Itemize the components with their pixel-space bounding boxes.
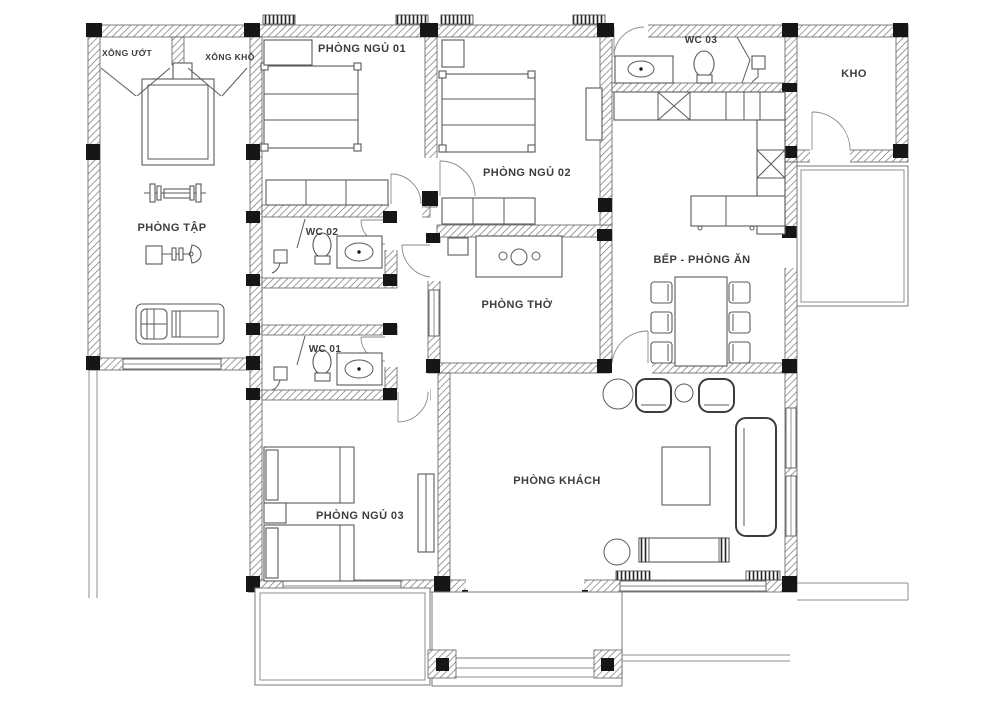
room-label-wc3: WC 03: [685, 35, 718, 46]
wardrobe-icon: [442, 198, 535, 224]
living-set-icon: [603, 379, 776, 565]
bed-icon: [261, 40, 388, 205]
sink-icon: [615, 56, 673, 83]
sink-icon: [337, 353, 382, 385]
window: [786, 476, 796, 536]
treadmill-icon: [136, 304, 224, 344]
room-label-wc2: WC 02: [306, 227, 339, 238]
nightstand-icon: [442, 40, 464, 67]
room-label-worship: PHÒNG THỜ: [481, 298, 552, 311]
shower-icon: [274, 250, 287, 263]
room-label-gym: PHÒNG TẬP: [138, 221, 207, 234]
window: [123, 359, 221, 369]
sauna-cabins-icon: [101, 63, 247, 165]
stool-icon: [604, 539, 630, 565]
room-label-sauna-wet: XÔNG ƯỚT: [102, 47, 152, 58]
dining-set-icon: [651, 277, 750, 366]
wardrobe-icon: [266, 180, 388, 205]
room-label-kitchen-dining: BẾP - PHÒNG ĂN: [653, 253, 750, 266]
kitchen-counter-icon: [614, 92, 785, 234]
console-table-icon: [639, 538, 729, 562]
side-patio: [797, 166, 908, 306]
gym-equipment-icon: [136, 184, 224, 344]
room-label-bedroom1: PHÒNG NGỦ 01: [318, 42, 406, 55]
window: [620, 581, 766, 591]
floor-plan-drawing: XÔNG ƯỚT XÔNG KHÔ PHÒNG NGỦ 01 PHÒNG NGỦ…: [0, 0, 1000, 705]
shower-icon: [752, 56, 765, 69]
room-label-living: PHÒNG KHÁCH: [513, 474, 601, 487]
window: [786, 408, 796, 468]
shower-icon: [274, 367, 287, 380]
sofa-icon: [736, 418, 776, 536]
coffee-table-icon: [662, 447, 710, 505]
armchair-icon: [699, 379, 734, 412]
dresser-icon: [264, 40, 312, 65]
bed-icon: [439, 40, 602, 224]
room-label-sauna-dry: XÔNG KHÔ: [205, 51, 254, 62]
armchair-icon: [636, 379, 671, 412]
desk-icon: [586, 88, 602, 140]
altar-icon: [448, 236, 562, 277]
floor-plan: XÔNG ƯỚT XÔNG KHÔ PHÒNG NGỦ 01 PHÒNG NGỦ…: [0, 0, 1000, 705]
room-label-bedroom3: PHÒNG NGỦ 03: [316, 509, 404, 522]
nightstand-icon: [264, 503, 286, 523]
room-label-storage: KHO: [841, 68, 867, 80]
wardrobe-icon: [418, 474, 434, 552]
plant-icon: [603, 379, 633, 409]
room-label-wc1: WC 01: [309, 344, 342, 355]
sink-icon: [337, 236, 382, 268]
room-label-bedroom2: PHÒNG NGỦ 02: [483, 166, 571, 179]
side-table-icon: [675, 384, 693, 402]
toilet-icon: [694, 51, 714, 83]
window: [429, 290, 439, 336]
